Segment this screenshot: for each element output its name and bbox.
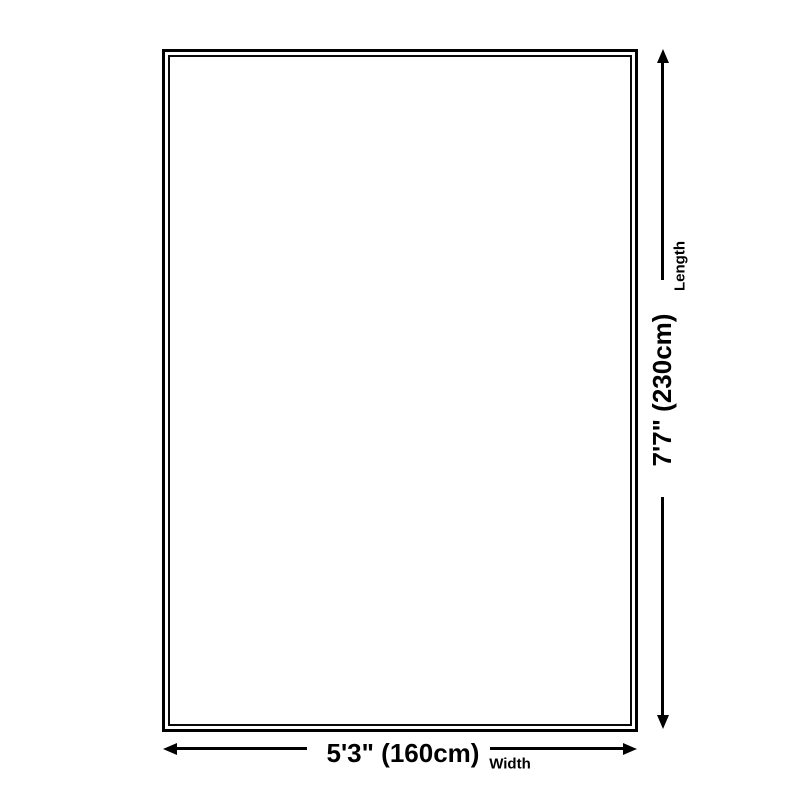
- dimension-diagram: Length 7'7" (230cm) 5'3" (160cm) Width: [0, 0, 800, 800]
- arrow-right-icon: [623, 743, 637, 755]
- arrow-down-icon: [657, 715, 669, 729]
- width-axis-label: Width: [489, 757, 531, 772]
- rug-inner-border: [168, 55, 632, 726]
- width-value: 5'3" (160cm): [327, 740, 480, 766]
- rug-outline: [162, 49, 638, 732]
- width-line-right: [490, 747, 624, 750]
- length-line-upper: [661, 60, 664, 280]
- length-line-lower: [661, 497, 664, 717]
- length-value: 7'7" (230cm): [649, 314, 675, 467]
- length-axis-label: Length: [673, 241, 688, 291]
- width-line-left: [175, 747, 307, 750]
